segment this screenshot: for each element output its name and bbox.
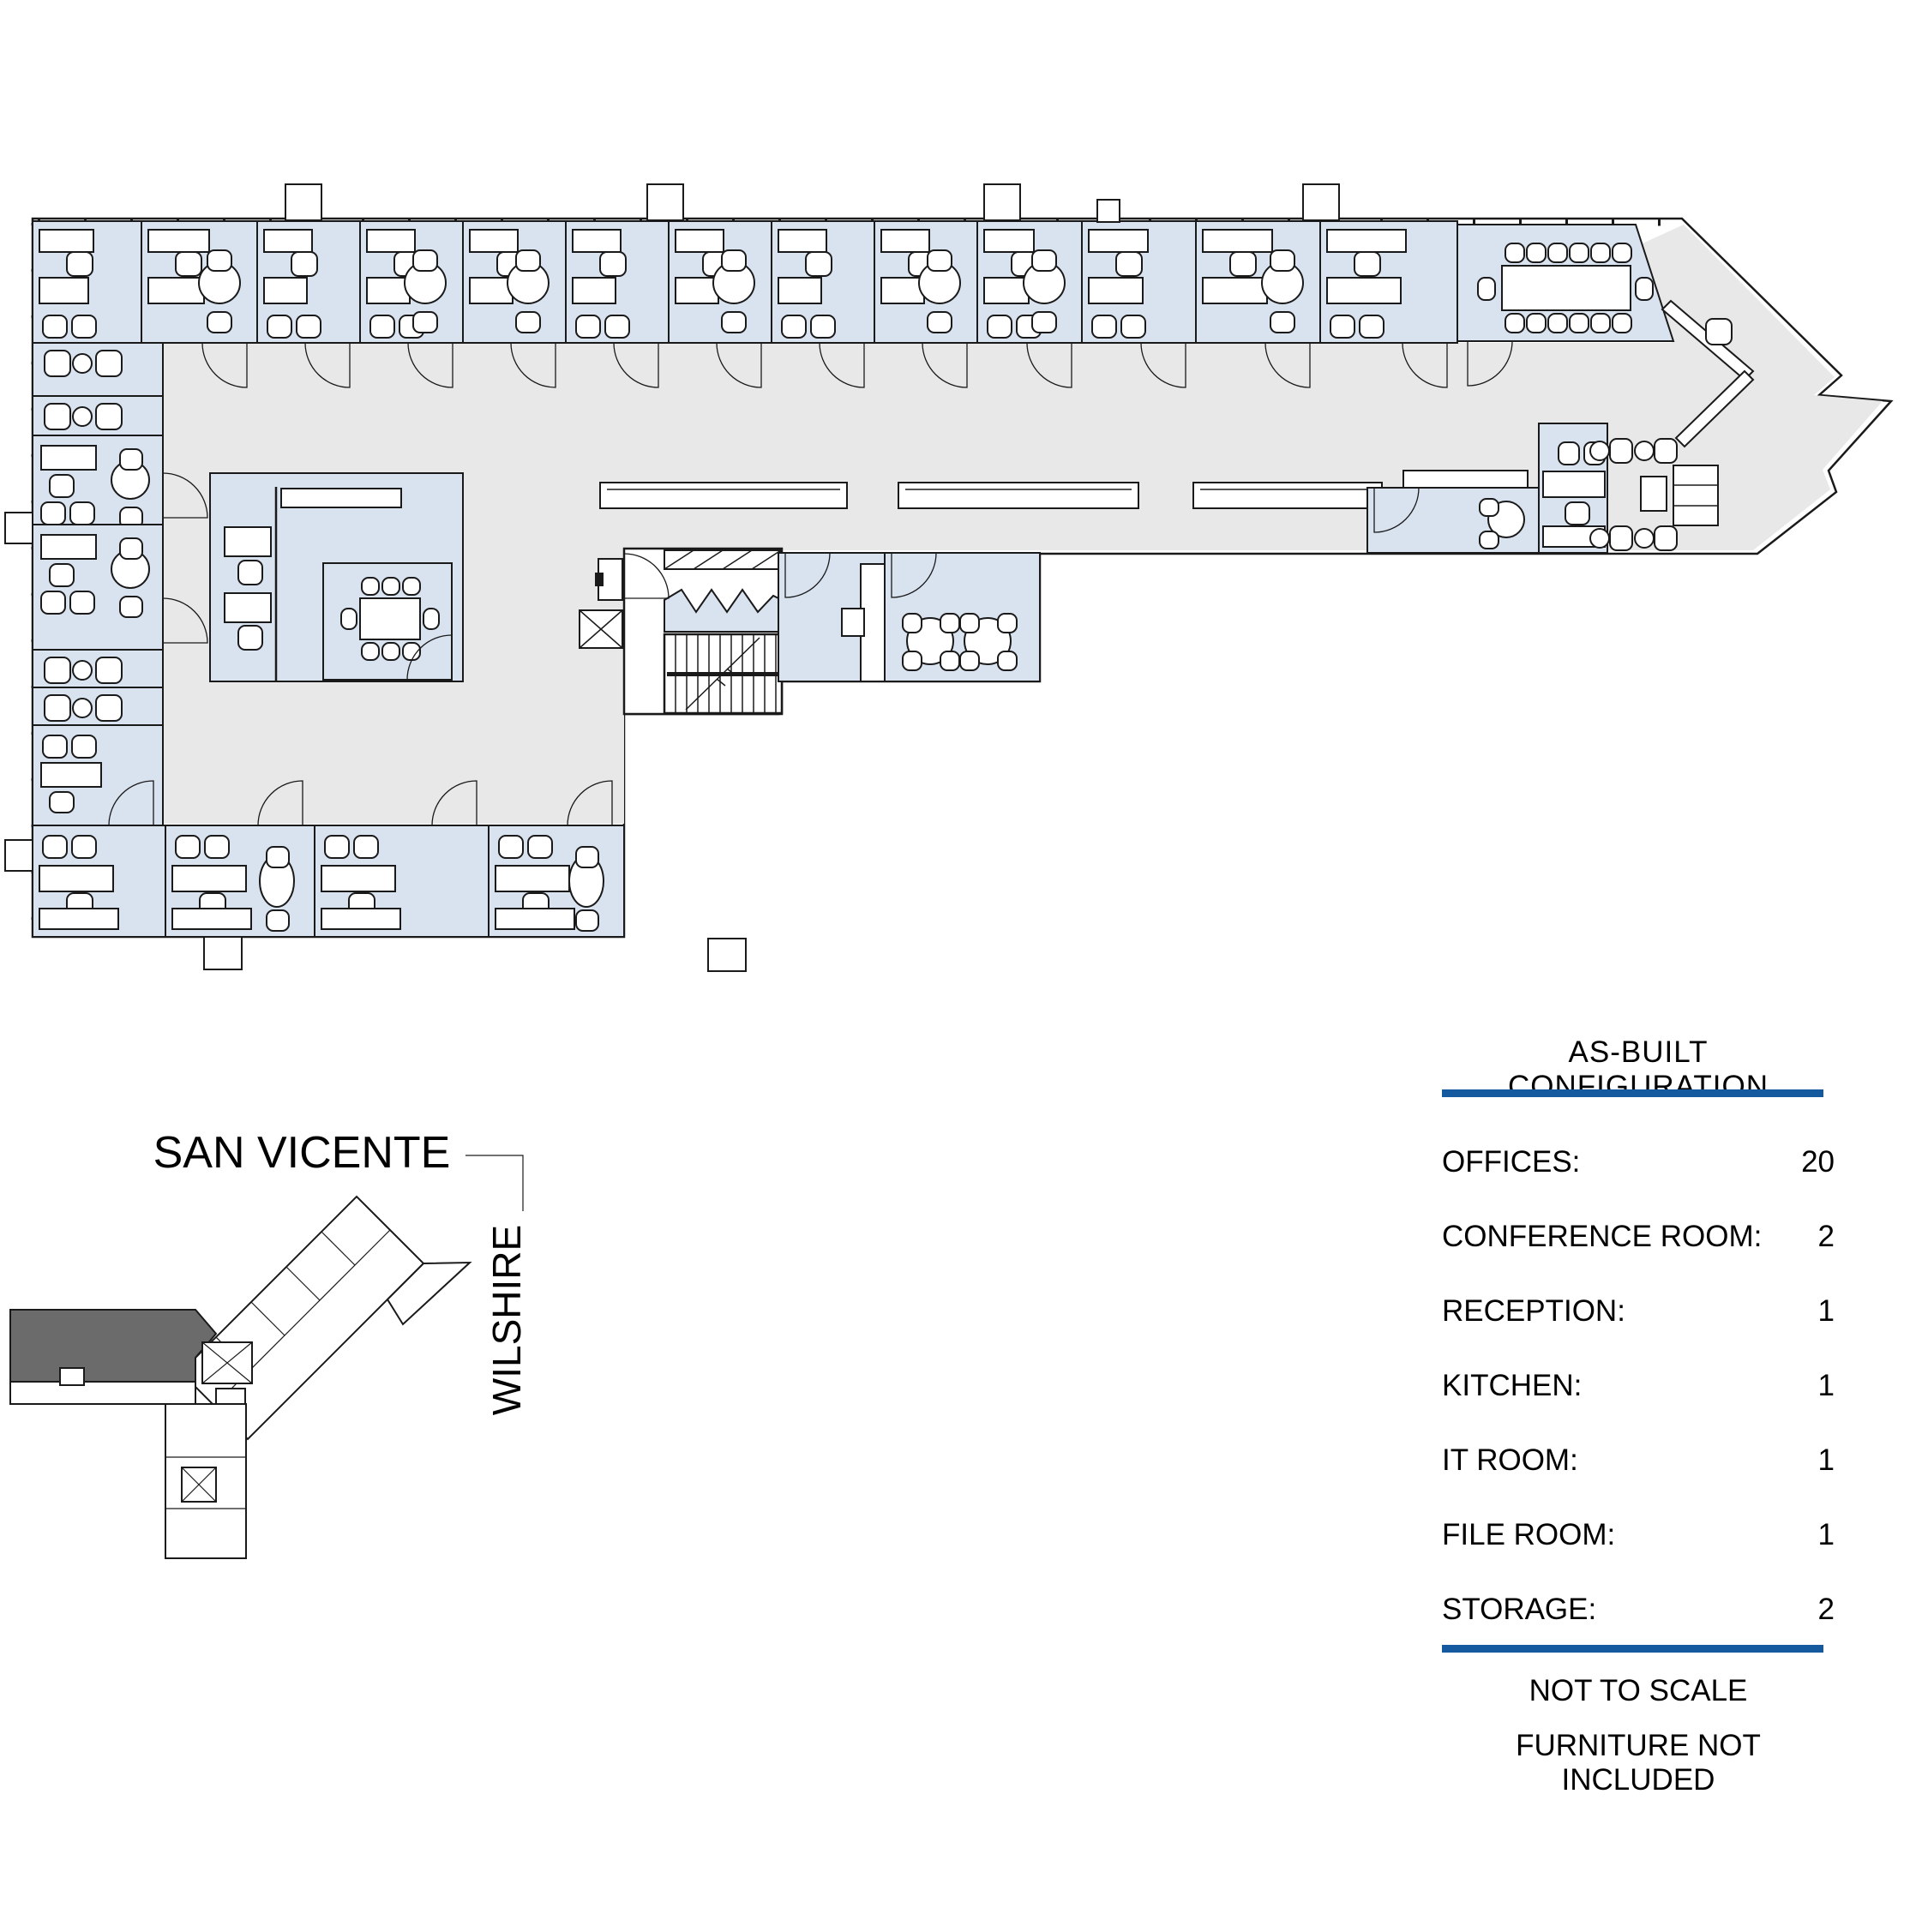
chair [382, 643, 399, 660]
storage-lockers [664, 550, 780, 569]
chair [1613, 314, 1631, 333]
desk [367, 278, 410, 303]
legend-value: 1 [1818, 1294, 1835, 1330]
equipment-panel [595, 573, 604, 586]
chair [1636, 278, 1653, 300]
chair [45, 657, 70, 683]
side-table [73, 407, 92, 426]
chair [1610, 526, 1632, 550]
chair [67, 252, 93, 276]
site-wing-west-highlighted [10, 1310, 216, 1382]
chair [1570, 243, 1589, 262]
legend-value: 2 [1818, 1593, 1835, 1629]
chair [1480, 499, 1499, 516]
site-plan: SAN VICENTE WILSHIRE [10, 1128, 529, 1558]
chair [960, 651, 979, 670]
column [708, 939, 746, 971]
desk [778, 278, 821, 303]
chair [1613, 243, 1631, 262]
chair [811, 315, 835, 338]
chair [516, 312, 540, 333]
legend-value: 1 [1818, 1518, 1835, 1554]
legend-label: CONFERENCE ROOM: [1442, 1220, 1762, 1256]
chair [1548, 314, 1567, 333]
side-table [1635, 529, 1654, 548]
legend-value: 1 [1818, 1369, 1835, 1405]
desk [984, 278, 1029, 303]
chair [1655, 526, 1677, 550]
side-table [73, 661, 92, 680]
street-label-san-vicente: SAN VICENTE [153, 1128, 451, 1178]
equipment [842, 609, 864, 636]
chair [928, 250, 952, 271]
chair [1230, 252, 1256, 276]
column [5, 840, 33, 871]
chair [43, 735, 67, 758]
chair [176, 252, 201, 276]
chair [120, 538, 142, 559]
chair [362, 643, 379, 660]
side-table [1635, 441, 1654, 460]
desk [470, 230, 518, 252]
architectural-drawing: SAN VICENTE WILSHIRE [0, 0, 1922, 1932]
chair [72, 315, 96, 338]
legend-value: 1 [1818, 1443, 1835, 1479]
chair [806, 252, 832, 276]
chair [1591, 243, 1610, 262]
chair [1610, 439, 1632, 463]
chair [120, 597, 142, 617]
chair [70, 591, 94, 614]
desk [676, 230, 724, 252]
chair [576, 847, 598, 867]
chair [341, 609, 357, 629]
legend-value: 20 [1801, 1145, 1835, 1181]
column [984, 184, 1020, 220]
chair [120, 449, 142, 470]
desk [264, 230, 312, 252]
column [204, 937, 242, 969]
chair [499, 836, 523, 858]
desk [1203, 278, 1267, 303]
site-core-box [60, 1368, 84, 1385]
chair [267, 847, 289, 867]
desk [225, 527, 271, 556]
chair [605, 315, 629, 338]
desk [321, 909, 400, 929]
chair [1505, 314, 1524, 333]
chair [72, 836, 96, 858]
legend-row-file-room: FILE ROOM: 1 [1442, 1518, 1835, 1554]
legend-label: IT ROOM: [1442, 1443, 1578, 1479]
chair [413, 250, 437, 271]
desk [984, 230, 1034, 252]
chair [50, 792, 74, 813]
side-table [73, 354, 92, 373]
chair [1706, 319, 1732, 345]
chair [1032, 312, 1056, 333]
chair [600, 252, 626, 276]
chair [903, 614, 922, 633]
chair [96, 657, 122, 683]
coffee-table [1641, 477, 1667, 511]
chair [1655, 439, 1677, 463]
chair [267, 315, 291, 338]
chair [354, 836, 378, 858]
desk [367, 230, 415, 252]
legend-label: OFFICES: [1442, 1145, 1580, 1181]
chair [45, 695, 70, 721]
column [285, 184, 321, 220]
legend-rule-bottom [1442, 1645, 1823, 1653]
desk [39, 866, 113, 891]
chair [297, 315, 321, 338]
chair [988, 315, 1012, 338]
chair [1360, 315, 1384, 338]
desk [321, 866, 395, 891]
chair [267, 910, 289, 931]
legend-row-storage: STORAGE: 2 [1442, 1593, 1835, 1629]
chair [50, 475, 74, 497]
chair [1505, 243, 1524, 262]
desk [1502, 266, 1631, 310]
legend-row-offices: OFFICES: 20 [1442, 1145, 1835, 1181]
chair [96, 404, 122, 429]
credenza [600, 483, 847, 508]
chair [960, 614, 979, 633]
chair [576, 910, 598, 931]
chair [940, 614, 959, 633]
chair [291, 252, 317, 276]
credenza [898, 483, 1138, 508]
chair [325, 836, 349, 858]
chair [782, 315, 806, 338]
side-table [1590, 529, 1609, 548]
desk [1089, 230, 1148, 252]
column [1303, 184, 1339, 220]
chair [423, 609, 439, 629]
legend-row-it-room: IT ROOM: 1 [1442, 1443, 1835, 1479]
column [5, 513, 33, 543]
chair [370, 315, 394, 338]
chair [43, 315, 67, 338]
desk [496, 909, 574, 929]
desk [225, 593, 271, 622]
desk [1203, 230, 1272, 252]
desk [148, 278, 204, 303]
desk [39, 278, 88, 303]
desk [39, 230, 93, 252]
chair [50, 564, 74, 586]
chair [722, 250, 746, 271]
desk [172, 866, 246, 891]
chair [96, 351, 122, 376]
desk [778, 230, 826, 252]
chair [96, 695, 122, 721]
chair [382, 578, 399, 595]
legend-row-reception: RECEPTION: 1 [1442, 1294, 1835, 1330]
desk [41, 446, 96, 470]
desk [881, 230, 929, 252]
leader-line [465, 1155, 523, 1211]
sofa [1673, 465, 1718, 525]
cabinet [281, 489, 401, 507]
chair [1527, 243, 1546, 262]
chair [43, 836, 67, 858]
desk [41, 535, 96, 559]
desk [1543, 471, 1605, 497]
chair [1092, 315, 1116, 338]
desk [264, 278, 307, 303]
desk [360, 598, 420, 639]
desk [573, 278, 616, 303]
column [647, 184, 683, 220]
chair [45, 351, 70, 376]
chair [362, 578, 379, 595]
chair [1032, 250, 1056, 271]
chair [940, 651, 959, 670]
desk [41, 763, 101, 787]
chair [1527, 314, 1546, 333]
chair [403, 578, 420, 595]
desk [1327, 278, 1401, 303]
credenza [1403, 471, 1528, 488]
chair [70, 502, 94, 525]
chair [176, 836, 200, 858]
legend-label: STORAGE: [1442, 1593, 1596, 1629]
column [1097, 200, 1120, 222]
street-label-wilshire: WILSHIRE [484, 1225, 529, 1415]
chair [928, 312, 952, 333]
chair [207, 312, 231, 333]
legend-value: 2 [1818, 1220, 1835, 1256]
desk [148, 230, 209, 252]
legend-note-furniture: FURNITURE NOT INCLUDED [1442, 1729, 1835, 1797]
chair [903, 651, 922, 670]
chair [1548, 243, 1567, 262]
chair [516, 250, 540, 271]
legend-row-conference: CONFERENCE ROOM: 2 [1442, 1220, 1835, 1256]
chair [238, 561, 262, 585]
chair [1354, 252, 1380, 276]
desk [172, 909, 251, 929]
desk [573, 230, 621, 252]
chair [238, 626, 262, 650]
desk [1089, 278, 1143, 303]
chair [576, 315, 600, 338]
chair [528, 836, 552, 858]
floor-plan [5, 184, 1891, 971]
legend-label: FILE ROOM: [1442, 1518, 1615, 1554]
desk [39, 909, 118, 929]
chair [205, 836, 229, 858]
side-table [73, 699, 92, 717]
chair [41, 591, 65, 614]
chair [1121, 315, 1145, 338]
legend-row-kitchen: KITCHEN: 1 [1442, 1369, 1835, 1405]
chair [1565, 502, 1589, 525]
desk [676, 278, 718, 303]
chair [1570, 314, 1589, 333]
desk [496, 866, 569, 891]
credenza [1193, 483, 1382, 508]
chair [998, 651, 1017, 670]
chair [1559, 442, 1579, 465]
chair [1330, 315, 1354, 338]
site-wing-west-lower [10, 1382, 195, 1404]
desk [881, 278, 924, 303]
chair [722, 312, 746, 333]
side-table [1590, 441, 1609, 460]
legend-note-scale: NOT TO SCALE [1442, 1674, 1835, 1708]
chair [1478, 278, 1495, 300]
legend-rule-top [1442, 1089, 1823, 1097]
chair [998, 614, 1017, 633]
desk [1327, 230, 1406, 252]
chair [1480, 531, 1499, 549]
chair [72, 735, 96, 758]
chair [45, 404, 70, 429]
chair [413, 312, 437, 333]
chair [207, 250, 231, 271]
legend-label: KITCHEN: [1442, 1369, 1582, 1405]
chair [1270, 250, 1294, 271]
chair [1270, 312, 1294, 333]
desk [470, 278, 513, 303]
legend-label: RECEPTION: [1442, 1294, 1625, 1330]
chair [41, 502, 65, 525]
chair [1591, 314, 1610, 333]
floor-plan-sheet: SAN VICENTE WILSHIRE AS-BUILT CONFIGURAT… [0, 0, 1922, 1932]
chair [1116, 252, 1142, 276]
